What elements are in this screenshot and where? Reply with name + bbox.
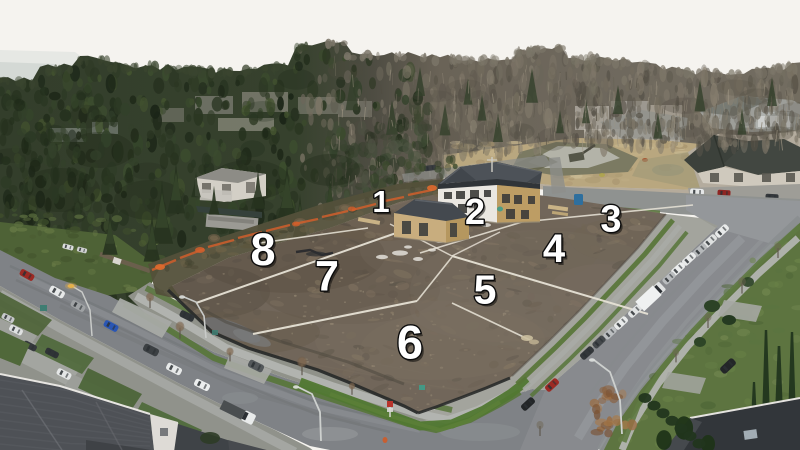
svg-text:3: 3 [600, 198, 621, 240]
svg-text:8: 8 [250, 224, 275, 275]
svg-text:1: 1 [372, 184, 389, 219]
svg-text:2: 2 [465, 191, 485, 232]
svg-text:7: 7 [315, 252, 339, 300]
svg-text:5: 5 [474, 267, 497, 313]
svg-text:4: 4 [543, 227, 566, 271]
svg-text:6: 6 [397, 316, 423, 369]
